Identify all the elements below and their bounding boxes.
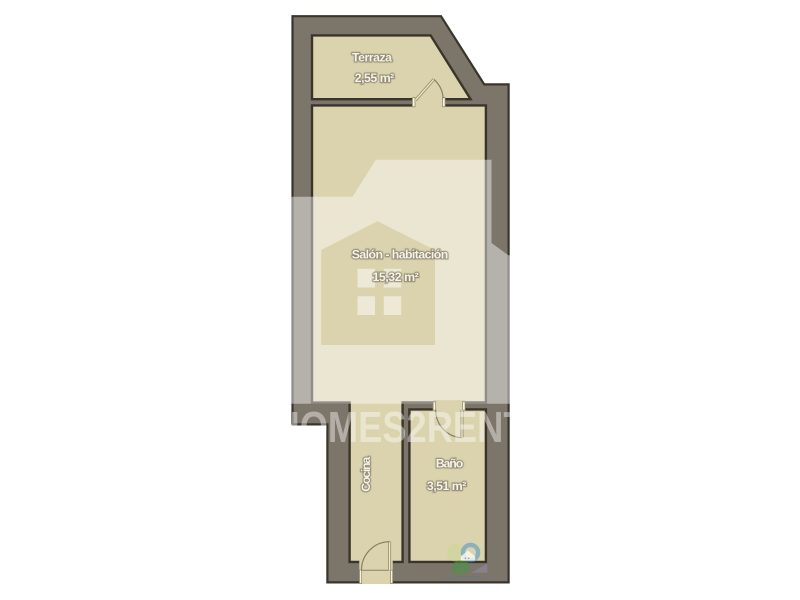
svg-text:Cocina: Cocina — [359, 457, 373, 492]
svg-text:15,32 m²: 15,32 m² — [372, 270, 418, 284]
svg-text:2,55 m²: 2,55 m² — [355, 71, 395, 85]
svg-text:Baño: Baño — [436, 457, 464, 471]
svg-text:Salón - habitación: Salón - habitación — [352, 247, 449, 261]
svg-text:HOMES2RENT: HOMES2RENT — [274, 403, 526, 452]
svg-text:Terraza: Terraza — [352, 50, 392, 64]
svg-text:www.homes2rent.com: www.homes2rent.com — [445, 575, 490, 580]
svg-text:3,51 m²: 3,51 m² — [427, 479, 467, 493]
